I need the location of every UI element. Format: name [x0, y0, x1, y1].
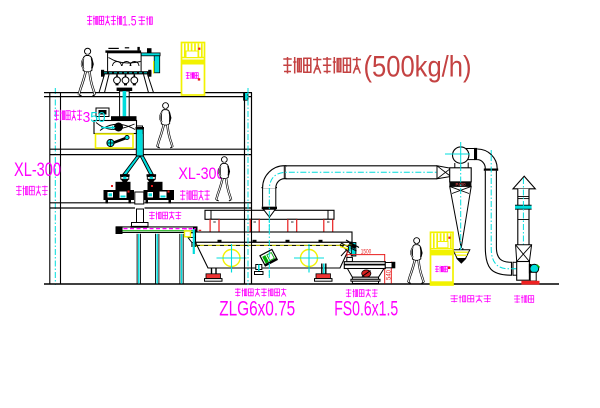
svg-text:ZLG6x0.75: ZLG6x0.75 — [219, 298, 295, 321]
svg-text:FS0.6x1.5: FS0.6x1.5 — [334, 298, 398, 321]
svg-text:(500kg/h): (500kg/h) — [364, 51, 472, 84]
svg-text:XL-300: XL-300 — [178, 164, 224, 183]
svg-text:XL-300: XL-300 — [14, 159, 61, 181]
svg-text:1.5: 1.5 — [122, 14, 137, 29]
svg-text:1500: 1500 — [361, 249, 372, 256]
svg-text:350: 350 — [83, 109, 106, 126]
svg-text:540: 540 — [386, 269, 392, 280]
